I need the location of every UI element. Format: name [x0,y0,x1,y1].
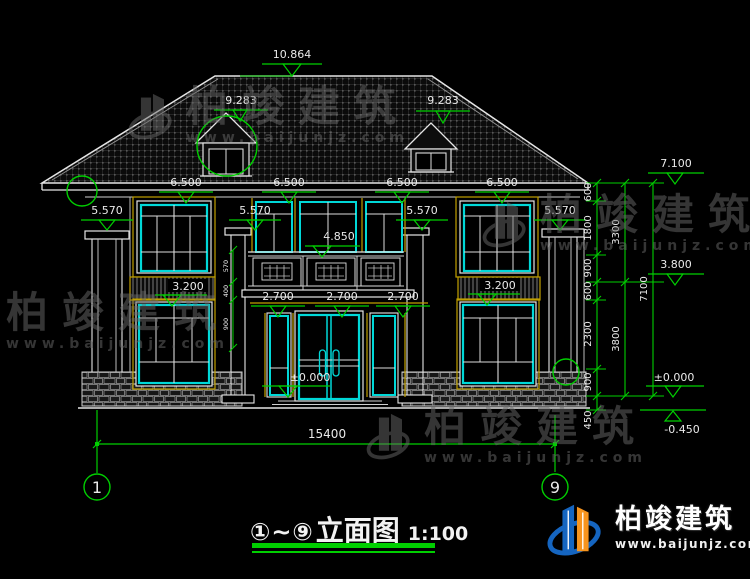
dim-2300: 2300 [583,321,594,346]
entrance-door [295,311,363,401]
axis-right-label: 9 [550,478,560,497]
level-ridge-label: 10.864 [273,48,312,61]
level-col-2-label: 5.570 [239,204,271,217]
window-1f-right [457,299,539,389]
level-lintel-3-label: 2.700 [387,290,419,303]
dim-600a: 600 [583,182,594,201]
mini-dim-3: 900 [222,318,230,330]
bottom-dimension: 15400 [93,410,559,473]
dim-900b: 900 [583,372,594,391]
level-col-1-label: 5.570 [91,204,123,217]
mini-dim-2: 400 [222,285,230,297]
company-logo-brand: 柏竣建筑 [615,505,750,535]
drawing-title-scale: 1:100 [408,523,468,545]
window-2f-right [456,197,538,277]
level-right-mid: 3.800 [648,258,704,285]
level-dormer-left-label: 9.283 [225,94,257,107]
level-eave-2-label: 6.500 [273,176,305,189]
level-right-mid-label: 3.800 [660,258,692,271]
total-width-label: 15400 [308,427,346,441]
level-col-3-label: 5.570 [406,204,438,217]
level-balcony-label: 4.850 [323,230,355,243]
dim-7100: 7100 [639,276,650,301]
mini-dim-1: 570 [222,260,230,272]
title-underline-thick [252,543,435,548]
title-underline-thin [252,551,435,553]
pillar-far-left [85,231,129,372]
level-right-neg: -0.450 [640,410,706,436]
level-col-4: 5.570 [534,204,586,230]
pillar-far-right [542,229,584,372]
center-bay-2f [252,198,405,252]
dim-1800: 1800 [583,215,594,240]
level-eave-3-label: 6.500 [386,176,418,189]
level-ground-label: ±0.000 [290,371,331,384]
dim-450: 450 [583,410,594,429]
company-logo: 柏竣建筑 www.baijunjz.com [545,497,750,559]
level-col-4-label: 5.570 [544,204,576,217]
company-logo-icon [545,497,607,559]
axis-bubble-left: 1 [84,474,110,500]
drawing-title-axis-range: ①~⑨ [250,518,314,546]
level-right-zero-label: ±0.000 [654,371,695,384]
level-band-right-label: 3.200 [484,279,516,292]
mini-dimension-chain: 570 400 900 [222,246,237,352]
level-ridge: 10.864 [240,48,322,76]
level-col-1: 5.570 [81,204,133,230]
level-eave-4-label: 6.500 [486,176,518,189]
level-eave-1-label: 6.500 [170,176,202,189]
axis-left-label: 1 [92,478,102,497]
level-lintel-2-label: 2.700 [326,290,358,303]
level-right-zero: ±0.000 [646,371,704,397]
window-1f-left [133,299,215,389]
dim-3300: 3300 [611,219,622,244]
dim-900a: 900 [583,258,594,277]
window-2f-left [133,197,215,277]
level-lintel-1-label: 2.700 [262,290,294,303]
company-logo-site: www.baijunjz.com [615,537,750,551]
right-dimension-chains [586,179,664,414]
level-dormer-right-label: 9.283 [427,94,459,107]
dim-600b: 600 [583,281,594,300]
cad-linework: 10.864 9.283 9.283 6.500 6.500 6.500 6.5… [0,0,750,579]
right-dimension-labels: 600 1800 900 600 2300 900 450 3300 3800 … [583,182,650,429]
dim-3800: 3800 [611,326,622,351]
level-band-left-label: 3.200 [172,280,204,293]
level-col-3: 5.570 [396,204,448,230]
elevation-drawing-canvas: 10.864 9.283 9.283 6.500 6.500 6.500 6.5… [0,0,750,579]
level-right-neg-label: -0.450 [664,423,699,436]
level-right-top-label: 7.100 [660,157,692,170]
